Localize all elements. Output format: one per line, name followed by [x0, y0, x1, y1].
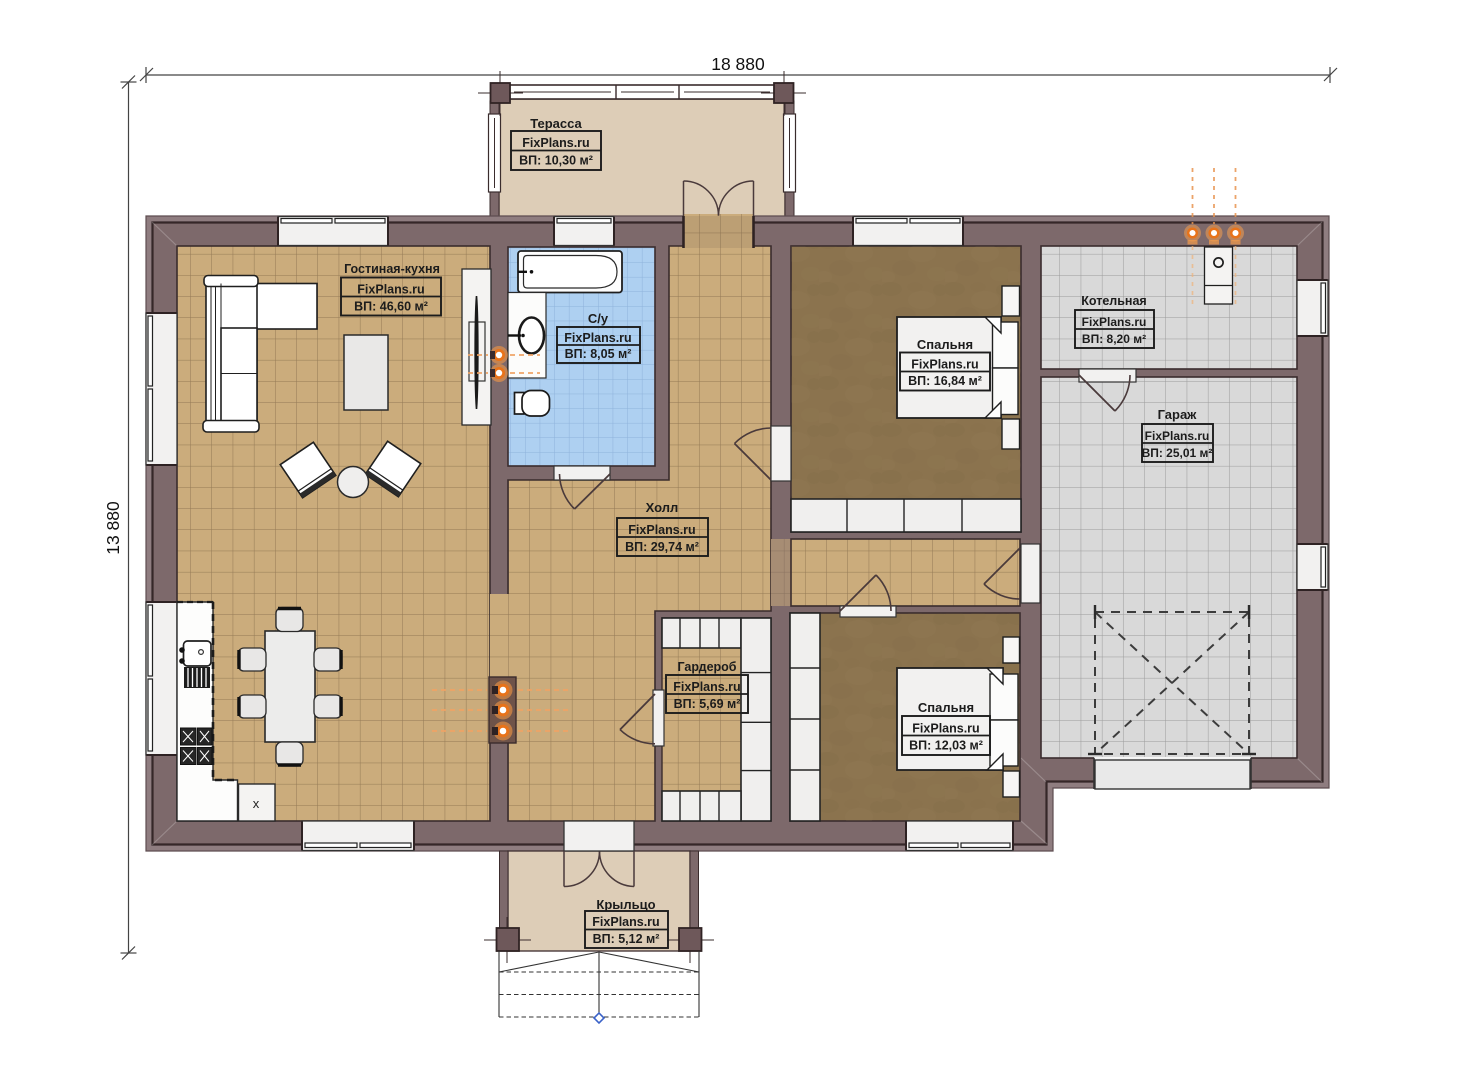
svg-text:Холл: Холл: [646, 500, 679, 515]
svg-text:ВП: 8,05 м²: ВП: 8,05 м²: [565, 347, 632, 361]
svg-text:Гардероб: Гардероб: [677, 660, 736, 674]
svg-text:Гостиная-кухня: Гостиная-кухня: [344, 262, 440, 276]
svg-text:FixPlans.ru: FixPlans.ru: [673, 680, 740, 694]
svg-text:ВП: 16,84 м²: ВП: 16,84 м²: [908, 374, 982, 388]
svg-text:FixPlans.ru: FixPlans.ru: [912, 722, 979, 736]
svg-text:Спальня: Спальня: [917, 337, 973, 352]
svg-text:Гараж: Гараж: [1158, 407, 1198, 422]
svg-text:ВП: 10,30 м²: ВП: 10,30 м²: [519, 154, 593, 168]
svg-text:ВП: 12,03 м²: ВП: 12,03 м²: [909, 739, 983, 753]
svg-text:С/у: С/у: [588, 311, 609, 326]
svg-text:FixPlans.ru: FixPlans.ru: [522, 136, 589, 150]
svg-text:Крыльцо: Крыльцо: [596, 897, 655, 912]
svg-text:FixPlans.ru: FixPlans.ru: [592, 915, 659, 929]
svg-text:FixPlans.ru: FixPlans.ru: [1082, 315, 1147, 329]
svg-text:FixPlans.ru: FixPlans.ru: [911, 358, 978, 372]
svg-text:Котельная: Котельная: [1081, 294, 1146, 308]
svg-text:ВП: 25,01 м²: ВП: 25,01 м²: [1142, 446, 1213, 460]
svg-text:18 880: 18 880: [711, 54, 765, 74]
svg-text:FixPlans.ru: FixPlans.ru: [1145, 429, 1210, 443]
svg-text:FixPlans.ru: FixPlans.ru: [357, 283, 424, 297]
svg-text:ВП: 29,74 м²: ВП: 29,74 м²: [625, 540, 699, 554]
svg-text:FixPlans.ru: FixPlans.ru: [564, 331, 631, 345]
svg-text:FixPlans.ru: FixPlans.ru: [628, 523, 695, 537]
svg-text:Спальня: Спальня: [918, 700, 974, 715]
svg-text:ВП: 8,20 м²: ВП: 8,20 м²: [1082, 332, 1146, 346]
svg-text:ВП: 46,60 м²: ВП: 46,60 м²: [354, 300, 428, 314]
svg-text:ВП: 5,12 м²: ВП: 5,12 м²: [593, 932, 660, 946]
svg-text:ВП: 5,69 м²: ВП: 5,69 м²: [674, 697, 741, 711]
svg-text:13 880: 13 880: [103, 501, 123, 555]
svg-text:Терасса: Терасса: [530, 116, 582, 131]
svg-text:х: х: [253, 796, 260, 811]
